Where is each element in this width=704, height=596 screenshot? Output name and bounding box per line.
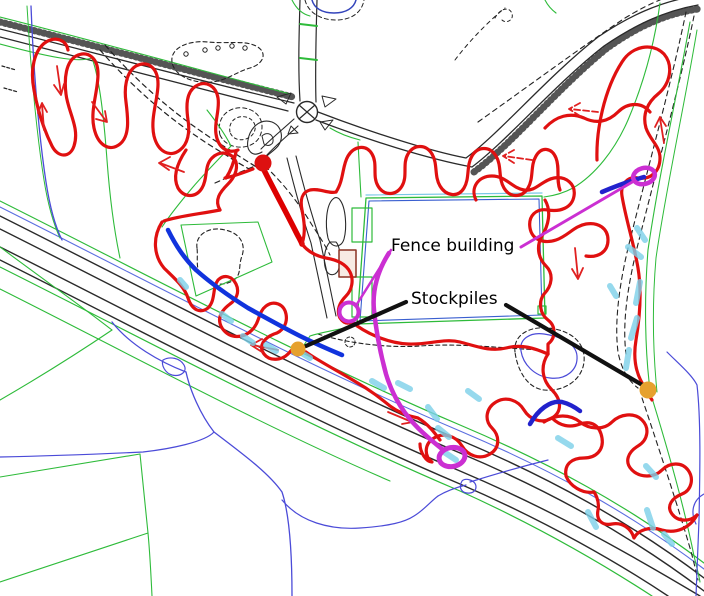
nw-hedge-dash-2 [4,88,18,92]
tree-symbol-3 [230,44,234,48]
north-road-edge-2 [316,0,317,102]
fence-building-label: Fence building [391,236,514,256]
highlight-cyan-16 [558,438,571,446]
stream-south-main [186,372,292,596]
stockpile-dot-east [640,382,656,398]
ne-boundary-green-corner [545,0,556,13]
pond-top-blue [312,0,356,13]
paddock-teardrop-2 [326,198,345,246]
east-road-edge-1 [318,0,695,158]
tree-symbol-5 [184,52,188,56]
stream-along-road [470,460,548,482]
map-canvas [0,0,704,596]
corridor-green-2 [653,30,697,392]
highlight-cyan-21 [444,452,456,460]
callout-magenta-leader-fence-east [521,181,634,247]
highlight-cyan-6 [637,228,645,240]
right-corridor-dashed-1 [617,12,686,388]
highlight-cyan-17 [588,512,596,527]
trail-red-west-stair [176,150,237,210]
sw-field-green-3 [0,533,148,582]
arrow-red-7-down [572,248,583,279]
tree-symbol-2 [216,46,220,50]
highlight-cyan-1 [628,247,641,257]
north-road-culvert-2 [300,58,317,60]
paddock-teardrop-1 [248,121,282,158]
trail-red-start-leg [264,170,302,244]
pond-contour-dashed [515,328,584,390]
east-road-embankment-ticks [474,9,698,172]
pen-green-rect-1 [352,208,372,242]
highlight-cyan-20 [664,534,672,544]
ne-dashed-curl [495,9,512,22]
arrow-red-1-down [54,66,64,95]
mound-contour-outer [219,108,262,147]
sw-exit-road-2 [266,126,298,156]
tree-symbol-4 [243,46,247,50]
highlight-cyan-9 [243,336,253,343]
stockpiles-label: Stockpiles [411,289,498,309]
paddock-lane-edge-2 [296,156,336,316]
stockpile-dot-west [291,342,305,356]
highlight-cyan-12 [398,383,410,389]
sw-field-green-2 [140,454,148,533]
nw-road-edge-2 [0,37,288,111]
nw-road-verge-green-1 [0,17,290,94]
boundary-green-scrub-quad [181,222,272,296]
north-road-edge-1 [299,0,300,101]
triangle-green-2 [0,330,112,400]
arrow-red-8-left [503,150,532,163]
start-dot-red [255,155,271,171]
highlight-cyan-5 [610,286,616,296]
sw-field-green-1 [0,454,140,477]
field-boundary-below-motorway [0,289,390,481]
motorway-verge-green-lower [0,267,652,596]
north-road-culvert-1 [300,24,317,26]
trail-map-page: Fence building Stockpiles [0,0,704,596]
ne-track-dashed-2 [455,8,505,60]
stream-south-west-arm [0,432,214,457]
nw-road-hedge-ticks [0,22,293,97]
tree-symbol-1 [203,48,207,52]
sw-field-green-4 [148,533,152,596]
nw-hedge-dash-1 [2,66,16,70]
highlight-cyan-19 [647,510,653,528]
trail-red-ne-toprow [545,105,650,129]
pond-top-green-arc [292,0,310,16]
highlight-cyan-2 [636,282,640,303]
callout-magenta-circle-fence-west [340,303,359,322]
highlight-cyan-15 [468,391,479,399]
stream-center-meander [282,496,438,528]
motorway-edge-3 [0,247,700,596]
mound-contour-inner [230,117,256,140]
roundabout-island-ne [322,96,336,107]
highlight-cyan-4 [626,350,629,368]
